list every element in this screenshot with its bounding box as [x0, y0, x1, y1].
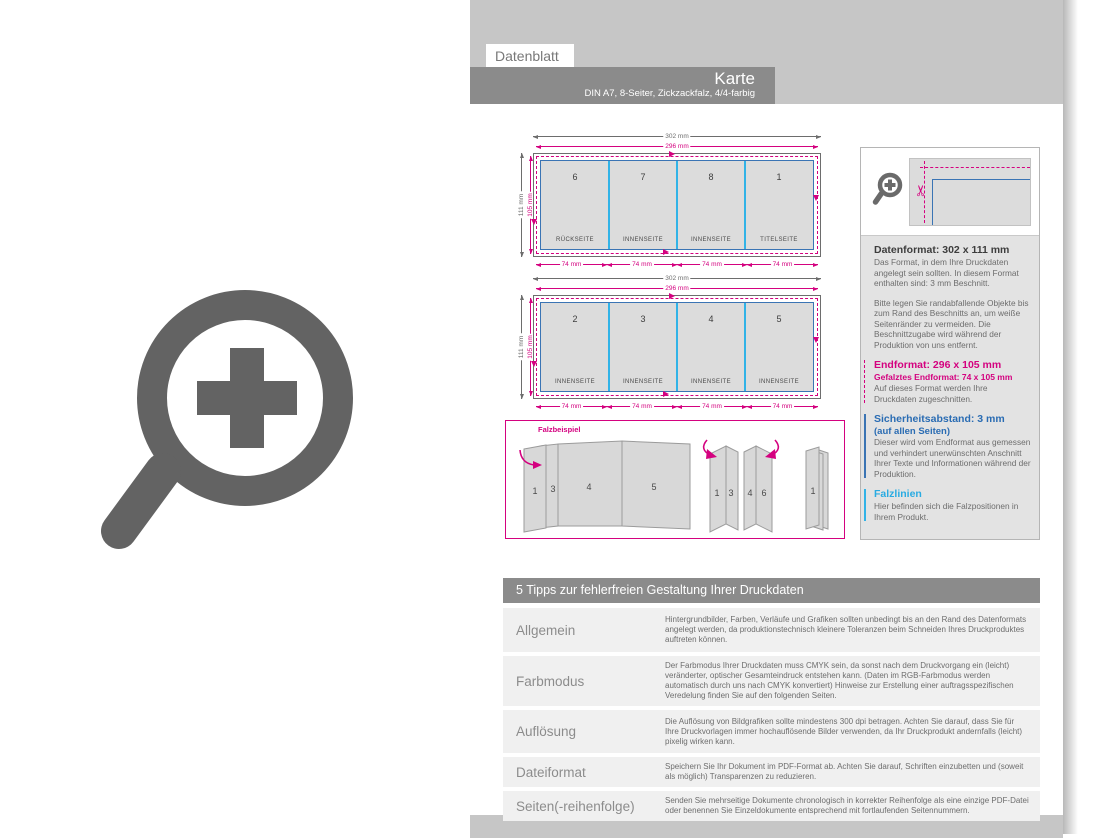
svg-text:5: 5: [651, 482, 656, 492]
section-bleed-note: Bitte legen Sie randabfallende Objekte b…: [874, 298, 1031, 351]
tips-row-aufloesung: Auflösung Die Auflösung von Bildgrafiken…: [503, 710, 1040, 753]
fold-line: [744, 303, 746, 391]
safety-body: Dieser wird vom Endformat aus gemessen u…: [874, 437, 1031, 479]
panel-area: 6RÜCKSEITE 7INNENSEITE 8INNENSEITE 1TITE…: [540, 160, 814, 250]
tip-text: Der Farbmodus Ihrer Druckdaten muss CMYK…: [665, 656, 1040, 706]
section-datenformat: Datenformat: 302 x 111 mm Das Format, in…: [874, 244, 1031, 289]
cut-mark-icon: [669, 151, 678, 157]
datenformat-body: Das Format, in dem Ihre Druckdaten angel…: [874, 257, 1031, 289]
tip-label: Dateiformat: [503, 765, 665, 780]
dimension-endformat-width: 296 mm: [536, 142, 818, 151]
tip-text: Speichern Sie Ihr Dokument im PDF-Format…: [665, 757, 1040, 787]
fold-line: [676, 161, 678, 249]
title-bar: Karte DIN A7, 8-Seiter, Zickzackfalz, 4/…: [470, 67, 775, 104]
safety-line: [932, 179, 1030, 180]
endformat-body: Auf dieses Format werden Ihre Druckdaten…: [874, 383, 1031, 404]
zoom-in-icon-large: [85, 275, 375, 565]
tips-row-allgemein: Allgemein Hintergrundbilder, Farben, Ver…: [503, 608, 1040, 652]
tip-text: Die Auflösung von Bildgrafiken sollte mi…: [665, 712, 1040, 752]
dimension-panel-width: 74 mm: [677, 260, 747, 269]
fold-line: [676, 303, 678, 391]
layout-sheet-inside: 302 mm 296 mm 111 mm 105 mm 2INNENSEITE …: [517, 273, 847, 415]
svg-text:4: 4: [747, 488, 752, 498]
endformat-title: Endformat: 296 x 105 mm: [874, 359, 1031, 372]
panel-2: 2INNENSEITE: [541, 303, 609, 391]
endformat-subtitle: Gefalztes Endformat: 74 x 105 mm: [874, 372, 1031, 383]
svg-text:1: 1: [714, 488, 719, 498]
scissors-icon: ✂: [914, 184, 929, 197]
dimension-panel-width: 74 mm: [536, 260, 607, 269]
panel-7: 7INNENSEITE: [609, 161, 677, 249]
panel-5: 5INNENSEITE: [745, 303, 813, 391]
page-title: Karte: [470, 69, 755, 88]
safety-title: Sicherheitsabstand: 3 mm: [874, 413, 1031, 426]
cut-mark-icon: [531, 219, 537, 228]
datasheet-page: Datenblatt Karte DIN A7, 8-Seiter, Zickz…: [0, 0, 1117, 838]
section-falzlinien: Falzlinien Hier befinden sich die Falzpo…: [874, 488, 1031, 522]
dimension-datenformat-height: 111 mm: [517, 295, 526, 399]
panel-4: 4INNENSEITE: [677, 303, 745, 391]
dimension-panel-width: 74 mm: [747, 260, 818, 269]
falzlinien-body: Hier befinden sich die Falzpositionen in…: [874, 501, 1031, 522]
fold-line: [744, 161, 746, 249]
tip-label: Seiten(-reihenfolge): [503, 799, 665, 814]
cut-mark-icon: [531, 361, 537, 370]
dimension-panel-width: 74 mm: [747, 402, 818, 411]
falzlinien-title: Falzlinien: [874, 488, 1031, 501]
tips-row-farbmodus: Farbmodus Der Farbmodus Ihrer Druckdaten…: [503, 656, 1040, 706]
tip-label: Allgemein: [503, 623, 665, 638]
safety-subtitle: (auf allen Seiten): [874, 426, 1031, 437]
safety-line: [932, 179, 933, 225]
tip-label: Auflösung: [503, 724, 665, 739]
fold-line: [608, 161, 610, 249]
dimension-datenformat-width: 302 mm: [533, 132, 821, 141]
page-subtitle: DIN A7, 8-Seiter, Zickzackfalz, 4/4-farb…: [470, 88, 755, 100]
cut-mark-icon: [669, 293, 678, 299]
info-text: Datenformat: 302 x 111 mm Das Format, in…: [861, 236, 1039, 539]
fold-example-label: Falzbeispiel: [538, 425, 581, 434]
svg-text:6: 6: [761, 488, 766, 498]
fold-example-box: Falzbeispiel 1 3 4 5 1 3 4 6: [505, 420, 845, 539]
dimension-panel-width: 74 mm: [607, 402, 677, 411]
datenformat-title: Datenformat: 302 x 111 mm: [874, 244, 1031, 257]
panel-3: 3INNENSEITE: [609, 303, 677, 391]
zoom-detail-box: ✂: [861, 148, 1039, 236]
panel-8: 8INNENSEITE: [677, 161, 745, 249]
dimension-datenformat-width: 302 mm: [533, 274, 821, 283]
svg-text:3: 3: [728, 488, 733, 498]
fold-example-illustration: 1 3 4 5 1 3 4 6 1: [514, 436, 838, 536]
panel-1: 1TITELSEITE: [745, 161, 813, 249]
section-safety: Sicherheitsabstand: 3 mm (auf allen Seit…: [874, 413, 1031, 479]
datenblatt-tab: Datenblatt: [486, 44, 574, 68]
cut-mark-icon: [813, 195, 819, 204]
page-edge-shadow: [1063, 0, 1078, 834]
section-endformat: Endformat: 296 x 105 mm Gefalztes Endfor…: [874, 359, 1031, 404]
zoom-in-icon-small: [871, 172, 905, 214]
svg-text:1: 1: [810, 486, 815, 496]
dimension-panel-width: 74 mm: [536, 402, 607, 411]
fold-line: [608, 303, 610, 391]
cut-mark-icon: [663, 391, 672, 397]
tip-label: Farbmodus: [503, 674, 665, 689]
info-panel: ✂ Datenformat: 302 x 111 mm Das Format, …: [860, 147, 1040, 540]
panel-6: 6RÜCKSEITE: [541, 161, 609, 249]
tips-header: 5 Tipps zur fehlerfreien Gestaltung Ihre…: [503, 578, 1040, 603]
cut-mark-icon: [813, 337, 819, 346]
dimension-panel-width: 74 mm: [607, 260, 677, 269]
cut-mark-icon: [663, 249, 672, 255]
dimension-endformat-width: 296 mm: [536, 284, 818, 293]
tip-text: Hintergrundbilder, Farben, Verläufe und …: [665, 610, 1040, 650]
tips-section: 5 Tipps zur fehlerfreien Gestaltung Ihre…: [503, 578, 1040, 825]
corner-detail: ✂: [909, 158, 1031, 226]
bleed-note: Bitte legen Sie randabfallende Objekte b…: [874, 298, 1031, 351]
tip-text: Senden Sie mehrseitige Dokumente chronol…: [665, 791, 1040, 821]
dimension-datenformat-height: 111 mm: [517, 153, 526, 257]
svg-text:1: 1: [532, 486, 537, 496]
layout-sheet-outside: 302 mm 296 mm 111 mm 105 mm 6RÜCKSEITE 7…: [517, 131, 847, 273]
panel-area: 2INNENSEITE 3INNENSEITE 4INNENSEITE 5INN…: [540, 302, 814, 392]
dimension-panel-width: 74 mm: [677, 402, 747, 411]
trim-line: [920, 167, 1030, 168]
svg-text:3: 3: [550, 484, 555, 494]
svg-text:4: 4: [586, 482, 591, 492]
tips-row-seitenreihenfolge: Seiten(-reihenfolge) Senden Sie mehrseit…: [503, 791, 1040, 821]
tips-row-dateiformat: Dateiformat Speichern Sie Ihr Dokument i…: [503, 757, 1040, 787]
